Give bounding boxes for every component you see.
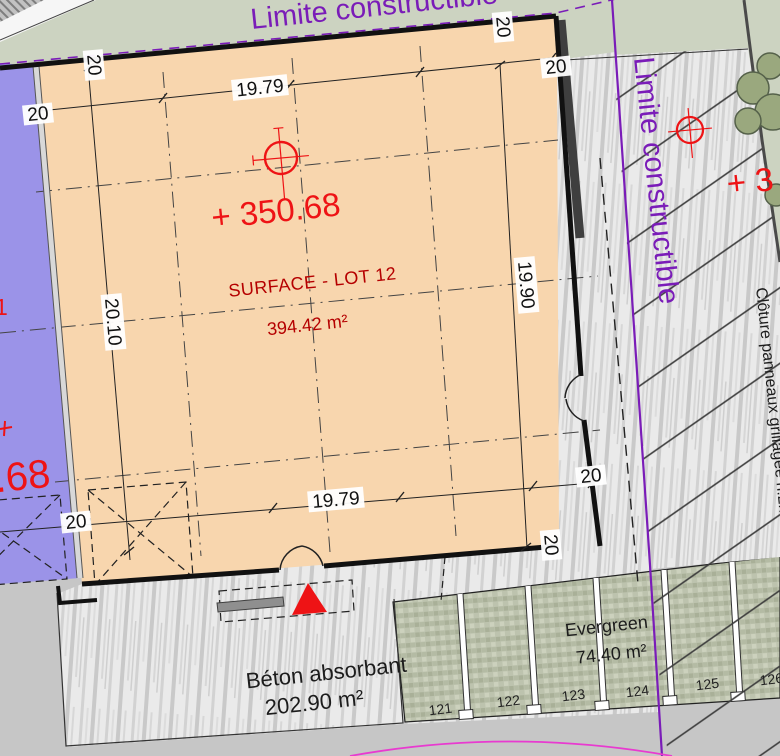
site-plan-drawing: Limite constructible Limite constructibl… [0, 0, 780, 756]
dim-wall-value: 20 [539, 534, 562, 557]
stall-number: 122 [496, 692, 521, 711]
dim-wall-chip: 20 [491, 11, 515, 43]
dim-right-value: 19.90 [513, 260, 538, 309]
dim-bottom-value: 19.79 [311, 488, 360, 513]
elevation-left-partial: .68 [0, 452, 52, 502]
dim-wall-chip: 20 [82, 49, 106, 81]
dim-wall-chip: 20 [575, 464, 607, 488]
elevation-left-fragment: 1 [0, 294, 8, 320]
dim-wall-value: 20 [491, 16, 514, 39]
hatched-overlay-bottom [662, 698, 780, 756]
stall-number: 123 [561, 686, 586, 705]
stall-number: 121 [428, 700, 453, 719]
dim-wall-value: 20 [64, 511, 87, 534]
dim-wall-chip: 20 [540, 55, 572, 79]
elevation-right-partial: + 3 [725, 160, 775, 202]
dim-wall-value: 20 [579, 465, 602, 488]
dim-left-value: 20.10 [100, 297, 125, 346]
dim-wall-value: 20 [82, 54, 105, 77]
dim-wall-value: 20 [26, 103, 49, 126]
dim-wall-chip: 20 [22, 102, 54, 126]
dim-wall-chip: 20 [539, 529, 563, 561]
dim-wall-chip: 20 [60, 510, 92, 534]
site-plan: Limite constructible Limite constructibl… [0, 0, 780, 756]
stall-number: 124 [625, 682, 650, 701]
dim-wall-value: 20 [544, 56, 567, 79]
stall-number: 125 [695, 675, 720, 694]
stall-number: 126 [759, 670, 780, 689]
